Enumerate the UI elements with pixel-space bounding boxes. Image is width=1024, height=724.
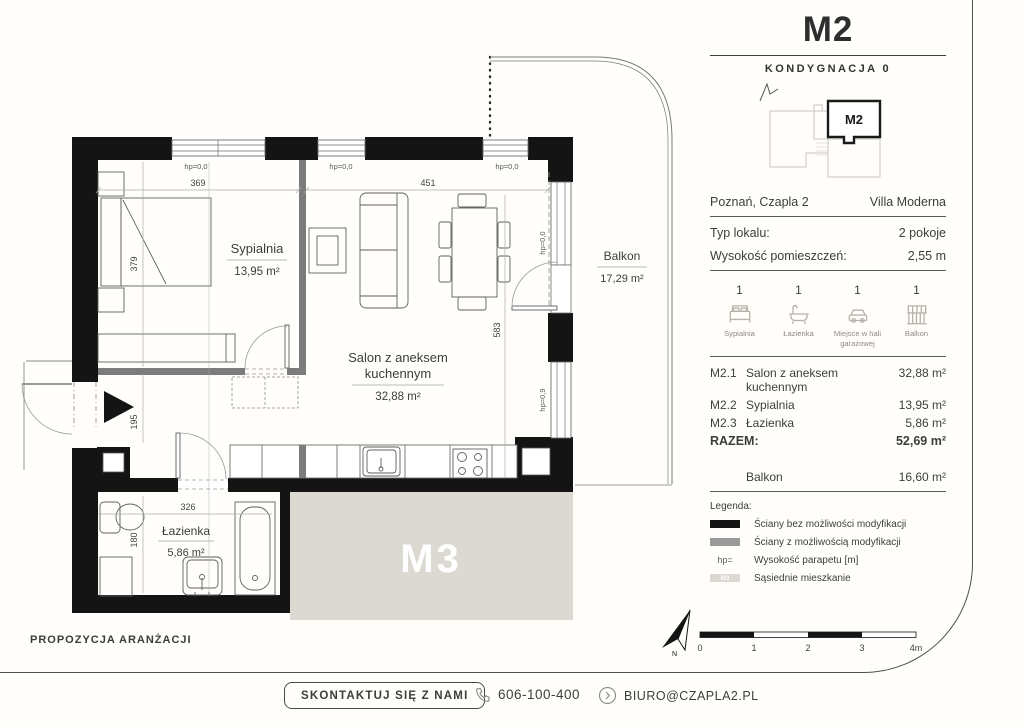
email-link[interactable]: BIURO@CZAPLA2.PL xyxy=(598,686,759,705)
location-row: Poznań, Czapla 2 Villa Moderna xyxy=(710,195,946,209)
floorplan-page: M3 xyxy=(0,0,1024,724)
north-label: N xyxy=(672,651,677,658)
title-divider xyxy=(710,55,946,56)
dim-583: 583 xyxy=(492,322,502,337)
table-total-row: RAZEM: 52,69 m² xyxy=(710,434,946,448)
bed-icon xyxy=(723,301,757,327)
scale-tick-4: 4m xyxy=(910,643,923,653)
divider xyxy=(710,216,946,217)
legend-item-neighbor: M3 Sąsiednie mieszkanie xyxy=(710,573,946,584)
bedroom-bench xyxy=(98,334,235,362)
scale-tick-0: 0 xyxy=(697,643,702,653)
bathroom-label: Łazienka 5,86 m² xyxy=(158,524,214,559)
dining-table xyxy=(439,194,510,310)
shaft xyxy=(103,453,124,472)
svg-text:Salon z aneksem: Salon z aneksem xyxy=(348,350,448,365)
svg-text:Balkon: Balkon xyxy=(604,249,641,263)
svg-text:Sypialnia: Sypialnia xyxy=(231,241,285,256)
amenities-row: 1 Sypialnia 1 Łazienka 1 xyxy=(710,283,946,349)
window-top-living-1 xyxy=(318,140,365,156)
table-row: M2.1 Salon z aneksem kuchennym 32,88 m² xyxy=(710,366,946,394)
legend-item-structural-walls: Ściany bez możliwości modyfikacji xyxy=(710,519,946,530)
legend-title: Legenda: xyxy=(710,501,946,512)
locator-unit-label: M2 xyxy=(845,112,863,127)
unit-type-label: Typ lokalu: xyxy=(710,226,770,240)
bed xyxy=(98,172,211,312)
project-name: Villa Moderna xyxy=(870,195,946,209)
divider xyxy=(710,491,946,492)
unit-type-row: Typ lokalu: 2 pokoje xyxy=(710,226,946,240)
hp-label-3: hp=0,0 xyxy=(495,162,518,171)
svg-text:Łazienka: Łazienka xyxy=(162,524,210,538)
unit-title: M2 xyxy=(710,10,946,50)
hp-label-right-1: hp=0,0 xyxy=(538,231,547,254)
black-wall-swatch xyxy=(710,520,740,528)
hp-label-right-2: hp=0,9 xyxy=(538,388,547,411)
email-arrow-icon xyxy=(598,686,617,705)
kitchen-wall-stub xyxy=(299,445,306,478)
svg-text:17,29 m²: 17,29 m² xyxy=(600,273,644,285)
gray-wall-swatch xyxy=(710,538,740,546)
bathroom-cabinet xyxy=(100,557,132,596)
table-row: M2.2 Sypialnia 13,95 m² xyxy=(710,398,946,412)
balcony-label: Balkon 17,29 m² xyxy=(597,249,647,285)
svg-text:32,88 m²: 32,88 m² xyxy=(375,391,421,403)
amenity-bathroom: 1 Łazienka xyxy=(769,283,828,349)
toilet xyxy=(100,502,144,533)
hp-symbol: hp= xyxy=(710,556,740,564)
info-panel: M2 KONDYGNACJA 0 M2 Poznań, Czapla 2 Vil… xyxy=(710,10,946,584)
bathtub xyxy=(235,502,275,595)
dim-369: 369 xyxy=(190,178,205,188)
hp-label-2: hp=0,0 xyxy=(329,162,352,171)
neighbor-swatch: M3 xyxy=(710,574,740,582)
amenity-garage: 1 Miejsce w hali garażowej xyxy=(828,283,887,349)
legend-item-modifiable-walls: Ściany z możliwością modyfikacji xyxy=(710,537,946,548)
bedroom-door xyxy=(245,325,289,374)
balcony-icon xyxy=(900,301,934,327)
phone-link[interactable]: 606-100-400 xyxy=(474,686,580,703)
amenity-balcony: 1 Balkon xyxy=(887,283,946,349)
ceiling-height-label: Wysokość pomieszczeń: xyxy=(710,249,847,263)
table-row: M2.3 Łazienka 5,86 m² xyxy=(710,416,946,430)
bathtub-icon xyxy=(782,301,816,327)
scale-bar: N 0 1 2 3 4m xyxy=(648,604,938,664)
bedroom-label: Sypialnia 13,95 m² xyxy=(227,241,287,278)
bathroom-door xyxy=(176,433,228,492)
scale-tick-2: 2 xyxy=(805,643,810,653)
car-icon xyxy=(841,301,875,327)
ceiling-height-value: 2,55 m xyxy=(908,249,946,263)
divider xyxy=(710,356,946,357)
proposal-note: PROPOZYCJA ARANŻACJI xyxy=(30,634,192,646)
svg-text:kuchennym: kuchennym xyxy=(365,366,431,381)
window-top-bedroom xyxy=(172,140,265,156)
contact-button[interactable]: SKONTAKTUJ SIĘ Z NAMI xyxy=(284,682,485,709)
email-address: BIURO@CZAPLA2.PL xyxy=(624,689,759,703)
utility-box xyxy=(522,448,550,475)
floor-label: KONDYGNACJA 0 xyxy=(710,63,946,75)
dim-326: 326 xyxy=(180,502,195,512)
window-right-lower xyxy=(551,362,571,438)
legend-item-sill-height: hp= Wysokość parapetu [m] xyxy=(710,555,946,566)
unit-type-value: 2 pokoje xyxy=(899,226,946,240)
dim-379: 379 xyxy=(129,256,139,271)
hallway-wardrobe xyxy=(232,377,298,408)
scale-tick-3: 3 xyxy=(859,643,864,653)
balcony-area-row: Balkon 16,60 m² xyxy=(710,470,946,484)
neighbor-apartment-area: M3 xyxy=(290,492,573,620)
balcony-outline xyxy=(490,57,672,485)
dim-180: 180 xyxy=(129,532,139,547)
balcony-door xyxy=(512,262,571,313)
divider xyxy=(710,270,946,271)
room-area-table: M2.1 Salon z aneksem kuchennym 32,88 m² … xyxy=(710,366,946,484)
washbasin xyxy=(183,557,222,596)
phone-icon xyxy=(474,686,491,703)
legend: Legenda: Ściany bez możliwości modyfikac… xyxy=(710,501,946,584)
living-room-label: Salon z aneksem kuchennym 32,88 m² xyxy=(348,350,448,403)
svg-text:5,86 m²: 5,86 m² xyxy=(167,547,205,559)
ceiling-height-row: Wysokość pomieszczeń: 2,55 m xyxy=(710,249,946,263)
sofa xyxy=(360,193,408,308)
neighbor-label: M3 xyxy=(400,537,462,581)
amenity-bedroom: 1 Sypialnia xyxy=(710,283,769,349)
window-top-living-2 xyxy=(483,140,528,156)
dim-451: 451 xyxy=(420,178,435,188)
locator-north-arrow xyxy=(760,84,778,101)
svg-text:13,95 m²: 13,95 m² xyxy=(234,266,280,278)
contact-button-label: SKONTAKTUJ SIĘ Z NAMI xyxy=(301,690,468,702)
tv-unit xyxy=(309,228,346,273)
scale-tick-1: 1 xyxy=(751,643,756,653)
location-city: Poznań, Czapla 2 xyxy=(710,195,809,209)
phone-number: 606-100-400 xyxy=(498,687,580,702)
locator-map: M2 xyxy=(718,79,938,191)
floor-plan: M3 xyxy=(0,0,700,680)
dim-195: 195 xyxy=(129,414,139,429)
hp-label-1: hp=0,0 xyxy=(184,162,207,171)
